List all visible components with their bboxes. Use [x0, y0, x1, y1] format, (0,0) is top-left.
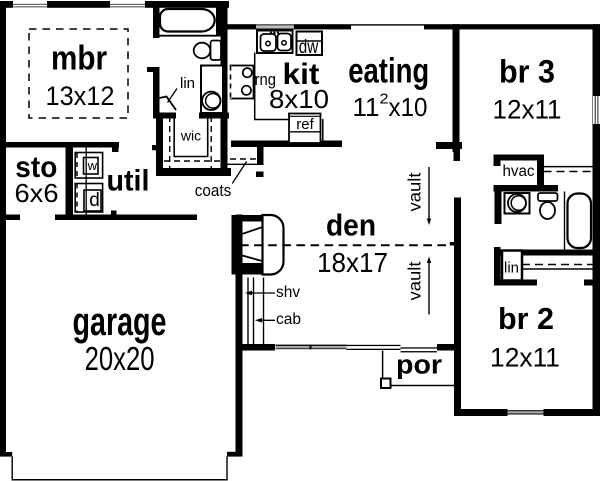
svg-text:lin: lin — [180, 75, 195, 92]
svg-text:2: 2 — [380, 91, 389, 108]
svg-text:18x17: 18x17 — [317, 247, 388, 278]
svg-text:eating: eating — [348, 52, 429, 91]
svg-text:util: util — [107, 165, 150, 198]
svg-text:cab: cab — [276, 311, 301, 328]
svg-text:por: por — [396, 350, 443, 380]
svg-text:ref: ref — [296, 116, 314, 133]
svg-text:hvac: hvac — [503, 163, 535, 180]
svg-text:w: w — [87, 158, 98, 173]
svg-text:coats: coats — [195, 181, 232, 200]
svg-text:br 3: br 3 — [499, 54, 555, 90]
svg-text:12x11: 12x11 — [490, 343, 560, 373]
svg-text:den: den — [326, 208, 376, 243]
svg-text:d: d — [89, 190, 100, 211]
svg-text:dw: dw — [299, 37, 319, 58]
svg-text:12x11: 12x11 — [493, 94, 562, 124]
svg-text:11: 11 — [353, 92, 380, 122]
svg-text:wic: wic — [180, 128, 201, 144]
svg-text:20x20: 20x20 — [85, 340, 155, 377]
svg-text:13x12: 13x12 — [46, 81, 115, 111]
svg-text:br 2: br 2 — [498, 301, 554, 336]
svg-text:vault: vault — [405, 261, 425, 300]
svg-text:shv: shv — [276, 284, 300, 301]
svg-text:mbr: mbr — [51, 40, 107, 78]
svg-text:garage: garage — [73, 300, 167, 344]
svg-text:8x10: 8x10 — [269, 84, 329, 114]
svg-text:6x6: 6x6 — [15, 178, 59, 208]
svg-text:vault: vault — [405, 172, 425, 211]
svg-text:lin: lin — [504, 260, 519, 277]
svg-text:x10: x10 — [389, 92, 428, 122]
